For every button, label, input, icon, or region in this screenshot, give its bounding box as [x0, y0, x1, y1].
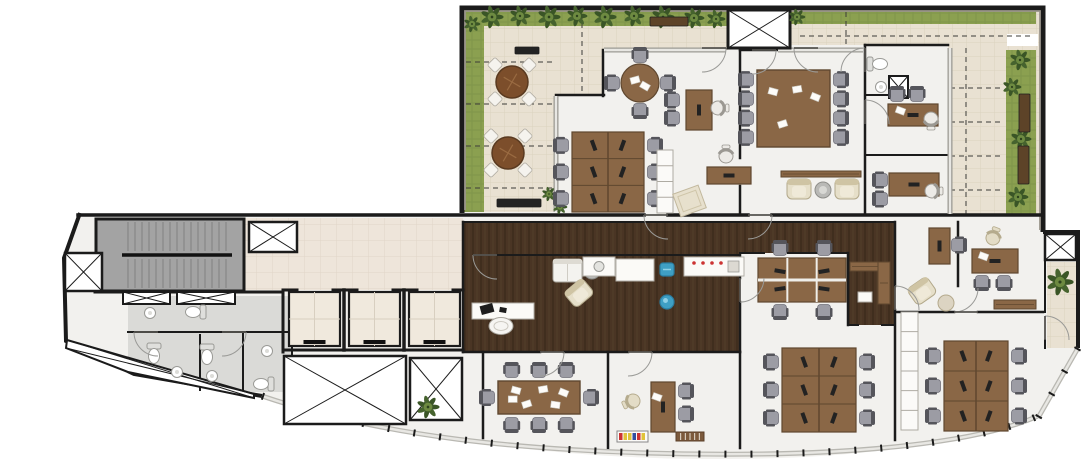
- elevator-group: [289, 292, 340, 346]
- shaft: [1045, 234, 1076, 260]
- chair: [909, 86, 926, 102]
- lounge-armchair: [835, 179, 859, 199]
- chair: [1012, 378, 1028, 395]
- chair: [834, 90, 850, 107]
- chair: [1012, 348, 1028, 365]
- bench-group: [1018, 146, 1029, 184]
- side-table: [815, 182, 831, 198]
- guest-chair: [664, 110, 680, 127]
- reception-stool: [489, 318, 513, 335]
- chair: [584, 389, 600, 406]
- stairwell: [96, 219, 244, 291]
- chair: [860, 382, 876, 399]
- guest-chair: [679, 406, 695, 423]
- lounge-armchair: [787, 179, 811, 199]
- sideboard-group: [781, 171, 861, 177]
- chair: [925, 408, 941, 425]
- outdoor-bench: [1018, 146, 1029, 184]
- toilet: [867, 57, 888, 71]
- exec-desk: [651, 382, 675, 432]
- kitchen-sink-counter: [583, 257, 615, 276]
- chair: [763, 382, 779, 399]
- sideboard-group: [878, 262, 890, 304]
- side-desk: [707, 167, 751, 184]
- blue-seat-group: [660, 295, 674, 309]
- shaft-group: [1045, 234, 1076, 260]
- sink-counter-group: [583, 257, 615, 276]
- cabinet: [901, 312, 918, 430]
- sofa-group: [553, 259, 582, 282]
- desk-group: [707, 167, 751, 184]
- guest-chair: [889, 86, 906, 102]
- manager-desk: [686, 90, 712, 130]
- toilet: [147, 343, 161, 364]
- elevator-group: [349, 292, 400, 346]
- side-desk: [929, 228, 950, 264]
- guest-chair: [996, 276, 1013, 292]
- chair: [772, 305, 789, 321]
- chair: [834, 110, 850, 127]
- bookshelf: [676, 432, 704, 441]
- cabinet: [657, 150, 673, 213]
- elevator: [289, 292, 340, 346]
- sofa: [553, 259, 582, 282]
- vent-shaft: [123, 292, 170, 304]
- bookshelf-group: [617, 431, 648, 442]
- chair: [679, 406, 695, 423]
- sink: [262, 346, 273, 357]
- bench-desk-group: [925, 341, 1027, 431]
- sideboard: [994, 300, 1036, 309]
- chair: [763, 410, 779, 427]
- armchair-group: [787, 179, 811, 199]
- sink-group: [145, 308, 156, 319]
- chair: [952, 237, 968, 254]
- shaft: [65, 253, 102, 291]
- chair: [834, 129, 850, 146]
- chair: [553, 164, 569, 181]
- toilet-group: [254, 377, 275, 391]
- toilet: [254, 377, 275, 391]
- chair: [816, 240, 833, 256]
- grass-top-right: [790, 10, 1036, 24]
- blue-seat: [660, 263, 674, 276]
- floor-plan-svg: [0, 0, 1088, 464]
- chair: [632, 104, 649, 120]
- chair: [738, 110, 754, 127]
- armchair-group: [835, 179, 859, 199]
- chair: [503, 418, 520, 434]
- side-table-group: [815, 182, 831, 198]
- cooktop-group: [684, 257, 744, 276]
- toilet: [186, 305, 207, 319]
- toilet-group: [186, 305, 207, 319]
- guest-chair: [974, 276, 991, 292]
- sink: [145, 308, 156, 319]
- chair: [889, 86, 906, 102]
- chair: [763, 354, 779, 371]
- stairwell-group: [96, 219, 244, 291]
- shelf-group: [901, 312, 918, 430]
- ottoman-group: [938, 295, 954, 311]
- sink: [207, 371, 218, 382]
- shaft-group: [284, 356, 406, 424]
- chair: [772, 240, 789, 256]
- shaft-group: [249, 222, 297, 252]
- outdoor-bench: [650, 17, 688, 26]
- cooktop-counter: [684, 257, 744, 276]
- desk-group: [972, 249, 1018, 273]
- chair: [834, 71, 850, 88]
- sink: [172, 367, 183, 378]
- chair: [664, 92, 680, 109]
- sink-group: [876, 82, 887, 93]
- sideboard-group: [994, 300, 1036, 309]
- guest-chair: [664, 92, 680, 109]
- sink-group: [207, 371, 218, 382]
- sink-group: [172, 367, 183, 378]
- sink: [876, 82, 887, 93]
- chair: [679, 383, 695, 400]
- toilet: [200, 344, 214, 365]
- chair: [738, 71, 754, 88]
- chair: [479, 389, 495, 406]
- outdoor-bench: [497, 199, 541, 207]
- shaft-group: [177, 292, 235, 304]
- chair: [872, 172, 888, 189]
- elevator-group: [409, 292, 460, 346]
- cabinet: [616, 259, 654, 281]
- toilet-group: [200, 344, 214, 365]
- chair: [860, 354, 876, 371]
- chair: [553, 190, 569, 207]
- elevator: [349, 292, 400, 346]
- desk-group: [651, 382, 675, 432]
- chair: [816, 305, 833, 321]
- ottoman: [938, 295, 954, 311]
- chair: [503, 362, 520, 378]
- guest-chair: [872, 191, 888, 208]
- shaft-group: [123, 292, 170, 304]
- blue-seat: [660, 295, 674, 309]
- vent-shaft: [177, 292, 235, 304]
- bench-group: [650, 17, 688, 26]
- chair: [925, 378, 941, 395]
- guest-chair: [909, 86, 926, 102]
- chair: [1012, 408, 1028, 425]
- blue-seat-group: [660, 263, 674, 276]
- chair: [974, 276, 991, 292]
- counter-l: [878, 262, 890, 304]
- workstation-cluster: [925, 341, 1027, 431]
- exec-desk: [972, 249, 1018, 273]
- guest-chair: [872, 172, 888, 189]
- bookshelf: [617, 431, 648, 442]
- guest-chair: [679, 383, 695, 400]
- chair: [738, 90, 754, 107]
- bench-group: [515, 47, 539, 54]
- chair: [632, 47, 649, 63]
- shaft-group: [65, 253, 102, 291]
- floor-plan-canvas: [0, 0, 1088, 464]
- shelf-group: [657, 150, 673, 213]
- outdoor-bench: [515, 47, 539, 54]
- sink-group: [262, 346, 273, 357]
- chair: [661, 75, 677, 92]
- chair: [738, 129, 754, 146]
- bookshelf-group: [676, 432, 704, 441]
- shaft: [249, 222, 297, 252]
- desk-group: [929, 228, 950, 264]
- toilet-group: [867, 57, 888, 71]
- office-chair: [952, 237, 968, 254]
- elevator: [409, 292, 460, 346]
- top-shaft: [728, 10, 790, 48]
- bench-group: [1019, 94, 1030, 132]
- stool-group: [489, 318, 513, 335]
- chair: [553, 137, 569, 154]
- shaft: [284, 356, 406, 424]
- toilet-group: [147, 343, 161, 364]
- counter-group: [858, 292, 872, 302]
- grass-left: [464, 10, 484, 212]
- outdoor-bench: [1019, 94, 1030, 132]
- chair: [558, 418, 575, 434]
- chair: [860, 410, 876, 427]
- chair: [872, 191, 888, 208]
- credenza: [781, 171, 861, 177]
- shaft-group: [728, 10, 790, 48]
- chair: [996, 276, 1013, 292]
- chair: [604, 75, 620, 92]
- bench-group: [497, 199, 541, 207]
- balcony: [1047, 262, 1076, 348]
- chair: [925, 348, 941, 365]
- desk-group: [686, 90, 712, 130]
- chair: [664, 110, 680, 127]
- cabinet: [858, 292, 872, 302]
- counter-group: [616, 259, 654, 281]
- chair: [531, 418, 548, 434]
- terrace-corner: [556, 50, 604, 96]
